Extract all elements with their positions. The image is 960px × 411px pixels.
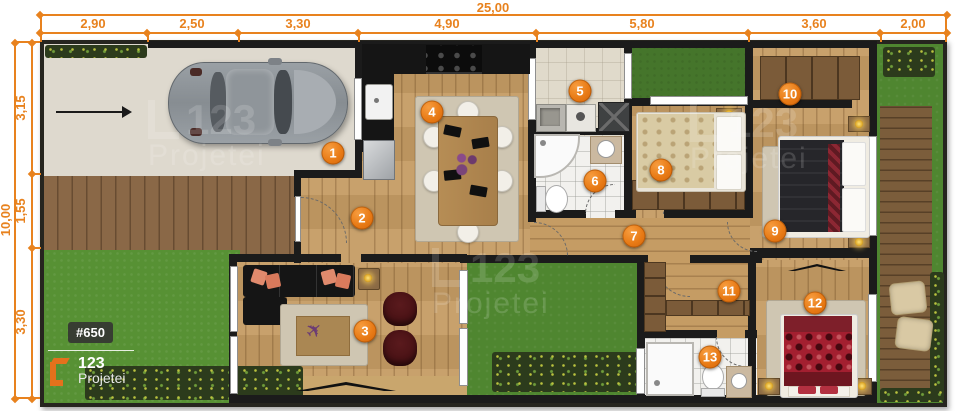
living-lamp xyxy=(364,274,372,282)
bedroom1-pillow xyxy=(716,154,742,190)
logo-mark-left xyxy=(50,362,56,382)
room-marker-7: 7 xyxy=(623,225,646,248)
hall-closet-bottom xyxy=(666,300,750,316)
sofa-pillow xyxy=(265,273,282,290)
car-roof xyxy=(226,69,274,135)
dim-top-seg-7: 2,00 xyxy=(900,16,925,31)
master-lamp-bottom xyxy=(855,238,863,246)
shower-drain-1 xyxy=(540,140,546,146)
room-marker-12: 12 xyxy=(804,292,827,315)
window-bedroom2-deck xyxy=(868,294,877,382)
dim-top-seg-line xyxy=(40,32,947,34)
wall-hall-top xyxy=(294,170,362,178)
room-marker-4: 4 xyxy=(421,101,444,124)
bedroom2-lamp-right xyxy=(858,382,866,390)
logo-divider-line xyxy=(48,350,134,351)
wall-bedroom1-bottom-b xyxy=(664,210,750,218)
dim-top-seg-6: 3,60 xyxy=(801,16,826,31)
bedroom2-cushion xyxy=(820,386,838,394)
dim-top-seg-4: 4,90 xyxy=(434,16,459,31)
dim-ext xyxy=(536,33,538,42)
room-marker-8: 8 xyxy=(650,159,673,182)
wall-bedroom1-right xyxy=(745,41,753,218)
dim-ext xyxy=(147,33,149,42)
room-marker-11: 11 xyxy=(718,280,741,303)
window-living-left-b xyxy=(230,336,238,394)
dim-ext xyxy=(33,247,41,249)
wall-bath2-top-b xyxy=(745,330,757,338)
bedroom2-pillows xyxy=(784,316,852,332)
deck-pouf xyxy=(894,316,934,352)
fridge xyxy=(363,140,395,180)
service-stove xyxy=(598,102,630,132)
dim-ext xyxy=(358,33,360,42)
car-wheel-tl xyxy=(190,68,202,76)
room-marker-2: 2 xyxy=(351,207,374,230)
driveway-arrow-head xyxy=(122,106,132,118)
wall-hall-left-a xyxy=(294,176,301,197)
hedge-top-left xyxy=(45,45,147,58)
brand-logo-text: 123 Projetei xyxy=(78,356,125,386)
dim-ext xyxy=(238,33,240,42)
bedroom2-lamp-left xyxy=(765,382,773,390)
room-marker-5: 5 xyxy=(569,80,592,103)
dim-top-total: 25,00 xyxy=(477,0,510,15)
dim-top-seg-1: 2,90 xyxy=(80,16,105,31)
wall-living-top-b xyxy=(361,254,467,262)
hedge-bottom-right xyxy=(880,388,944,402)
car-top-view xyxy=(168,62,346,142)
bedroom1-blanket xyxy=(638,114,714,188)
washtub-basin xyxy=(540,108,560,126)
hall-closet-left xyxy=(644,262,666,332)
brand-logo-icon xyxy=(50,356,74,388)
wall-closet-master xyxy=(750,100,852,108)
room-marker-3: 3 xyxy=(354,320,377,343)
entry-walkway-deck xyxy=(44,176,298,254)
dim-left-seg-line xyxy=(31,43,33,399)
dim-left-seg-3: 3,30 xyxy=(14,292,28,352)
room-marker-9: 9 xyxy=(764,220,787,243)
master-lamp-top xyxy=(855,120,863,128)
dim-tick xyxy=(36,29,44,37)
dim-left-seg-1: 3,15 xyxy=(14,78,28,138)
toilet1-bowl xyxy=(545,185,568,213)
room-marker-6: 6 xyxy=(584,170,607,193)
master-pillow xyxy=(842,142,866,186)
room-marker-13: 13 xyxy=(699,346,722,369)
washing-machine-door xyxy=(576,112,585,121)
window-bedroom1 xyxy=(650,96,748,105)
dim-top-seg-5: 5,80 xyxy=(629,16,654,31)
brand-logo: 123 Projetei xyxy=(50,356,125,388)
kitchen-sink-drain xyxy=(374,98,379,103)
car-rear-window xyxy=(210,72,226,132)
dim-ext xyxy=(33,173,41,175)
project-number-badge: #650 xyxy=(68,322,113,343)
sofa-pillow xyxy=(335,273,352,290)
armchair xyxy=(383,330,417,366)
hedge-right-edge xyxy=(930,272,944,402)
wall-closet-bedroom2 xyxy=(748,256,756,338)
stove-cooktop xyxy=(426,45,482,74)
room-marker-10: 10 xyxy=(779,83,802,106)
car-mirror-top xyxy=(268,58,282,65)
dim-ext xyxy=(880,33,882,42)
deck-pouf xyxy=(888,280,927,316)
shower-drain-2 xyxy=(654,380,660,386)
wall-master-bedroom2 xyxy=(750,248,877,258)
wall-living-top-a xyxy=(229,254,341,262)
dim-top-seg-3: 3,30 xyxy=(285,16,310,31)
floor-plan-sheet: ✈ 123 Projetei 123 Projetei 123 Projetei… xyxy=(0,0,960,411)
car-windshield xyxy=(274,70,292,134)
master-throw xyxy=(828,144,840,232)
car-mirror-bottom xyxy=(268,139,282,146)
window-garage-kitchen xyxy=(354,78,362,140)
kitchen-sink xyxy=(365,84,393,120)
dim-left-seg-2: 1,55 xyxy=(14,181,28,241)
window-living-garden-a xyxy=(459,270,468,324)
bedroom1-pillow xyxy=(716,116,742,152)
toilet2-tank xyxy=(701,388,725,397)
closet-wardrobe xyxy=(760,56,860,100)
entry-door-leaf xyxy=(295,196,301,242)
window-living-left-a xyxy=(230,266,238,332)
brand-logo-name: Projetei xyxy=(78,371,125,386)
hedge-top-right xyxy=(883,47,935,77)
bath2-basin xyxy=(731,373,747,389)
room-marker-1: 1 xyxy=(322,142,345,165)
wall-garden-top xyxy=(460,255,648,263)
armchair xyxy=(383,292,417,326)
master-pillow xyxy=(842,188,866,232)
driveway-arrow-line xyxy=(56,111,122,113)
dim-left-total: 10,00 xyxy=(0,190,13,250)
window-service-garden xyxy=(624,53,632,99)
dim-ext xyxy=(40,14,42,42)
logo-mark-foot xyxy=(50,380,63,386)
dim-top-seg-2: 2,50 xyxy=(179,16,204,31)
bedroom2-cushion xyxy=(798,386,816,394)
brand-logo-number: 123 xyxy=(78,356,125,371)
window-living-garden-b xyxy=(459,328,468,386)
car-wheel-bl xyxy=(190,128,202,136)
bedroom2-blanket-band xyxy=(784,372,852,386)
dim-ext xyxy=(748,33,750,42)
bath1-basin xyxy=(597,140,615,158)
hedge-center-garden xyxy=(492,352,638,392)
window-bath2-garden xyxy=(636,348,645,394)
bedroom2-damask-blanket xyxy=(784,332,852,372)
shower-box-2 xyxy=(646,342,694,396)
